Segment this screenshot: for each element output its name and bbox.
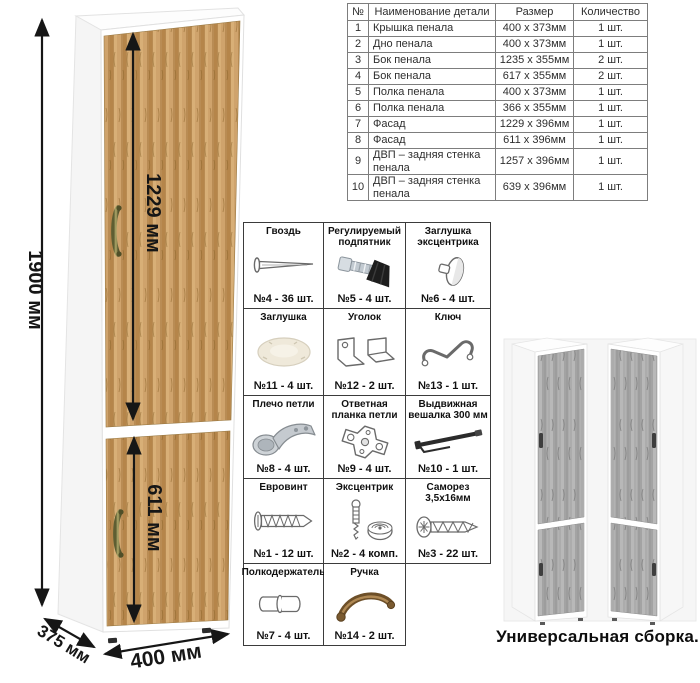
door-handle bbox=[539, 433, 543, 448]
self-tapping-screw-icon bbox=[407, 504, 489, 548]
hardware-title: Уголок bbox=[348, 312, 381, 323]
lower-door bbox=[106, 431, 230, 626]
table-row: 6 Полка пенала 366 х 355мм 1 шт. bbox=[348, 101, 648, 117]
table-row: 4 Бок пенала 617 х 355мм 2 шт. bbox=[348, 69, 648, 85]
hardware-count: №11 - 4 шт. bbox=[254, 380, 314, 392]
hardware-title: Полкодержатель bbox=[242, 567, 326, 578]
assembled-cabinets-photo: Универсальная сборка. bbox=[495, 335, 700, 683]
hardware-title: Ключ bbox=[435, 312, 461, 323]
cabinet-side-panel bbox=[58, 16, 103, 632]
cam-lock-icon bbox=[325, 493, 404, 548]
part-qty: 1 шт. bbox=[574, 149, 648, 175]
part-qty: 1 шт. bbox=[574, 85, 648, 101]
adjustable-foot-icon bbox=[325, 248, 404, 293]
hardware-cell-pullout-hanger: Выдвижная вешалка 300 мм №10 - 1 шт. bbox=[406, 396, 491, 479]
col-header-qty: Количество bbox=[574, 4, 648, 21]
col-header-num: № bbox=[348, 4, 369, 21]
handle-icon bbox=[325, 578, 404, 630]
hardware-title: Ответная планка петли bbox=[325, 399, 404, 421]
hardware-title: Саморез 3,5х16мм bbox=[407, 482, 489, 504]
hardware-title: Евровинт bbox=[259, 482, 307, 493]
col-header-name: Наименование детали bbox=[369, 4, 496, 21]
part-qty: 1 шт. bbox=[574, 117, 648, 133]
nail-icon bbox=[245, 237, 322, 293]
hardware-title: Заглушка эксцентрика bbox=[407, 226, 489, 248]
hardware-count: №13 - 1 шт. bbox=[418, 380, 478, 392]
part-qty: 1 шт. bbox=[574, 37, 648, 53]
part-num: 1 bbox=[348, 21, 369, 37]
hardware-cell-cam-lock: Эксцентрик №2 - 4 комп. bbox=[324, 479, 406, 564]
part-size: 1257 х 396мм bbox=[496, 149, 574, 175]
hardware-title: Регулируемый подпятник bbox=[325, 226, 404, 248]
hardware-cell-hinge-plate: Ответная планка петли №9 - 4 шт. bbox=[324, 396, 406, 479]
hardware-cell-handle: Ручка №14 - 2 шт. bbox=[324, 564, 406, 646]
part-size: 400 х 373мм bbox=[496, 85, 574, 101]
hardware-cell-cover-cap: Заглушка №11 - 4 шт. bbox=[244, 309, 324, 396]
part-size: 1229 х 396мм bbox=[496, 117, 574, 133]
part-qty: 1 шт. bbox=[574, 21, 648, 37]
hardware-count: №2 - 4 комп. bbox=[331, 548, 398, 560]
hardware-cell-empty bbox=[406, 564, 491, 646]
part-name: Полка пенала bbox=[369, 85, 496, 101]
height-dimension-label: 1900 мм bbox=[24, 250, 46, 330]
hardware-cell-hinge-arm: Плечо петли №8 - 4 шт. bbox=[244, 396, 324, 479]
part-num: 3 bbox=[348, 53, 369, 69]
hardware-cell-nail: Гвоздь №4 - 36 шт. bbox=[244, 223, 324, 309]
hardware-count: №10 - 1 шт. bbox=[418, 463, 478, 475]
hardware-count: №7 - 4 шт. bbox=[257, 630, 311, 642]
table-row: 10 ДВП – задняя стенка пенала 639 х 396м… bbox=[348, 175, 648, 201]
part-size: 639 х 396мм bbox=[496, 175, 574, 201]
parts-table-header: № Наименование детали Размер Количество bbox=[348, 4, 648, 21]
part-size: 366 х 355мм bbox=[496, 101, 574, 117]
part-size: 617 х 355мм bbox=[496, 69, 574, 85]
hardware-title: Заглушка bbox=[260, 312, 306, 323]
upper-door bbox=[104, 21, 240, 427]
hardware-count: №12 - 2 шт. bbox=[334, 380, 394, 392]
hardware-cell-adjustable-foot: Регулируемый подпятник №5 - 4 шт. bbox=[324, 223, 406, 309]
part-name: Дно пенала bbox=[369, 37, 496, 53]
parts-table: № Наименование детали Размер Количество … bbox=[347, 3, 648, 201]
hardware-cell-hex-key: Ключ №13 - 1 шт. bbox=[406, 309, 491, 396]
part-name: Крышка пенала bbox=[369, 21, 496, 37]
hardware-title: Эксцентрик bbox=[336, 482, 393, 493]
door-handle bbox=[539, 563, 543, 576]
hinge-plate-icon bbox=[325, 421, 404, 463]
part-num: 8 bbox=[348, 133, 369, 149]
corner-bracket-icon bbox=[325, 323, 404, 380]
part-name: ДВП – задняя стенка пенала bbox=[369, 175, 496, 201]
hinge-arm-icon bbox=[245, 410, 322, 463]
part-num: 6 bbox=[348, 101, 369, 117]
door-handle bbox=[652, 563, 656, 576]
euro-screw-icon bbox=[245, 493, 322, 548]
part-num: 7 bbox=[348, 117, 369, 133]
hardware-title: Плечо петли bbox=[252, 399, 314, 410]
hardware-count: №8 - 4 шт. bbox=[257, 463, 311, 475]
cover-cap-icon bbox=[245, 323, 322, 380]
door-handle bbox=[652, 433, 656, 448]
table-row: 5 Полка пенала 400 х 373мм 1 шт. bbox=[348, 85, 648, 101]
table-row: 9 ДВП – задняя стенка пенала 1257 х 396м… bbox=[348, 149, 648, 175]
hardware-count: №4 - 36 шт. bbox=[253, 293, 313, 305]
part-name: Фасад bbox=[369, 133, 496, 149]
cabinet-foot bbox=[202, 628, 211, 634]
table-row: 3 Бок пенала 1235 х 355мм 2 шт. bbox=[348, 53, 648, 69]
cabinet-illustration: 1900 мм 1229 мм 611 мм 375 мм 400 мм bbox=[0, 0, 246, 683]
part-qty: 1 шт. bbox=[574, 175, 648, 201]
part-name: Бок пенала bbox=[369, 69, 496, 85]
part-qty: 2 шт. bbox=[574, 53, 648, 69]
part-num: 4 bbox=[348, 69, 369, 85]
width-dimension-label: 400 мм bbox=[129, 640, 204, 674]
part-size: 400 х 373мм bbox=[496, 37, 574, 53]
hardware-count: №3 - 22 шт. bbox=[418, 548, 478, 560]
shelf-pin-icon bbox=[245, 578, 322, 630]
upper-door-dimension-label: 1229 мм bbox=[142, 173, 164, 253]
hardware-title: Ручка bbox=[350, 567, 379, 578]
col-header-size: Размер bbox=[496, 4, 574, 21]
part-size: 400 х 373мм bbox=[496, 21, 574, 37]
hardware-grid: Гвоздь №4 - 36 шт. Регулируемый подпятни… bbox=[243, 222, 491, 646]
part-name: Фасад bbox=[369, 117, 496, 133]
part-num: 9 bbox=[348, 149, 369, 175]
part-name: Полка пенала bbox=[369, 101, 496, 117]
hardware-count: №9 - 4 шт. bbox=[338, 463, 392, 475]
table-row: 1 Крышка пенала 400 х 373мм 1 шт. bbox=[348, 21, 648, 37]
part-qty: 2 шт. bbox=[574, 69, 648, 85]
part-num: 10 bbox=[348, 175, 369, 201]
pullout-hanger-icon bbox=[407, 421, 489, 463]
table-row: 8 Фасад 611 х 396мм 1 шт. bbox=[348, 133, 648, 149]
assembled-cabinets-drawing bbox=[495, 335, 700, 627]
part-num: 2 bbox=[348, 37, 369, 53]
hardware-cell-self-tapping-screw: Саморез 3,5х16мм №3 - 22 шт. bbox=[406, 479, 491, 564]
hardware-cell-corner-bracket: Уголок №12 - 2 шт. bbox=[324, 309, 406, 396]
cam-cap-icon bbox=[407, 248, 489, 293]
part-size: 1235 х 355мм bbox=[496, 53, 574, 69]
part-qty: 1 шт. bbox=[574, 133, 648, 149]
hardware-count: №6 - 4 шт. bbox=[421, 293, 475, 305]
assembled-cabinet-right bbox=[608, 338, 683, 625]
hardware-cell-cam-cap: Заглушка эксцентрика №6 - 4 шт. bbox=[406, 223, 491, 309]
cabinet-foot bbox=[108, 638, 117, 644]
hardware-count: №14 - 2 шт. bbox=[334, 630, 394, 642]
hardware-cell-shelf-pin: Полкодержатель №7 - 4 шт. bbox=[244, 564, 324, 646]
part-name: ДВП – задняя стенка пенала bbox=[369, 149, 496, 175]
hardware-title: Гвоздь bbox=[266, 226, 301, 237]
part-num: 5 bbox=[348, 85, 369, 101]
assembled-cabinet-left bbox=[512, 338, 587, 625]
part-qty: 1 шт. bbox=[574, 101, 648, 117]
hardware-title: Выдвижная вешалка 300 мм bbox=[407, 399, 489, 421]
hardware-count: №1 - 12 шт. bbox=[253, 548, 313, 560]
hardware-count: №5 - 4 шт. bbox=[338, 293, 392, 305]
table-row: 7 Фасад 1229 х 396мм 1 шт. bbox=[348, 117, 648, 133]
depth-dimension-label: 375 мм bbox=[34, 621, 94, 667]
part-size: 611 х 396мм bbox=[496, 133, 574, 149]
hardware-cell-euro-screw: Евровинт №1 - 12 шт. bbox=[244, 479, 324, 564]
lower-door-dimension-label: 611 мм bbox=[143, 484, 165, 551]
part-name: Бок пенала bbox=[369, 53, 496, 69]
table-row: 2 Дно пенала 400 х 373мм 1 шт. bbox=[348, 37, 648, 53]
assembly-caption: Универсальная сборка. bbox=[495, 627, 700, 647]
hex-key-icon bbox=[407, 323, 489, 380]
